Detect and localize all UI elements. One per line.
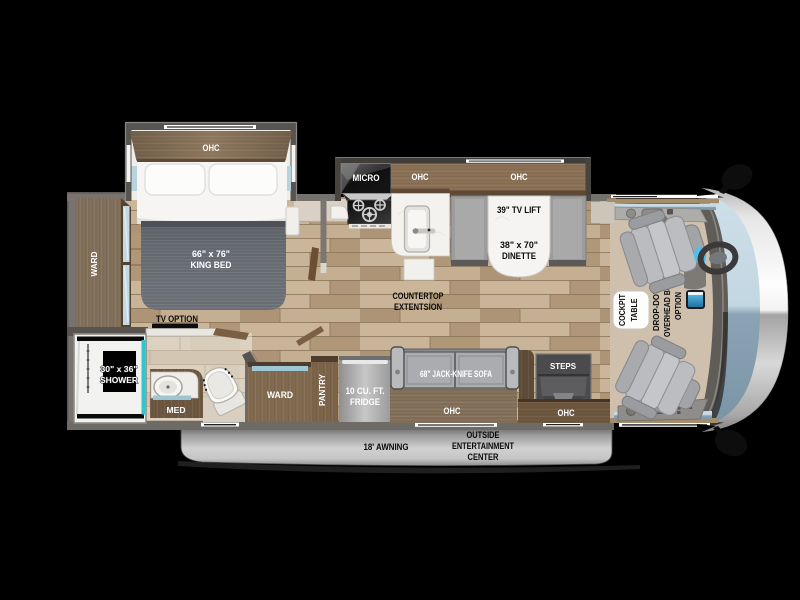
svg-text:TABLE: TABLE [629,298,639,321]
svg-text:OHC: OHC [444,406,461,416]
svg-text:WARD: WARD [267,390,293,400]
svg-text:WARD: WARD [89,252,99,277]
svg-text:66" x 76": 66" x 76" [192,249,230,259]
svg-text:PANTRY: PANTRY [317,374,327,406]
svg-text:ENTERTAINMENT: ENTERTAINMENT [452,441,514,451]
svg-text:18' AWNING: 18' AWNING [364,442,409,452]
svg-text:CENTER: CENTER [468,452,499,462]
svg-text:OHC: OHC [558,408,575,418]
svg-text:SHOWER: SHOWER [100,375,138,385]
svg-text:COCKPIT: COCKPIT [617,293,627,326]
svg-text:38" x 70": 38" x 70" [500,240,538,250]
svg-text:FRIDGE: FRIDGE [350,397,380,407]
svg-text:MED: MED [167,405,186,415]
svg-text:KING BED: KING BED [191,260,232,270]
svg-text:TV OPTION: TV OPTION [156,314,198,324]
svg-text:10 CU. FT.: 10 CU. FT. [346,386,385,396]
svg-text:STEPS: STEPS [550,361,576,371]
svg-text:39" TV LIFT: 39" TV LIFT [497,205,541,215]
svg-text:68" JACK-KNIFE SOFA: 68" JACK-KNIFE SOFA [420,369,492,379]
svg-text:COUNTERTOP: COUNTERTOP [393,291,444,301]
svg-text:30" x 36": 30" x 36" [101,364,138,374]
svg-text:OHC: OHC [511,172,528,182]
svg-text:OPTION: OPTION [674,292,683,320]
svg-text:EXTENTSION: EXTENTSION [394,302,442,312]
svg-text:OHC: OHC [203,143,220,153]
svg-text:OUTSIDE: OUTSIDE [467,430,500,440]
svg-text:MICRO: MICRO [353,173,380,183]
svg-text:DINETTE: DINETTE [502,251,536,261]
svg-text:OHC: OHC [412,172,429,182]
